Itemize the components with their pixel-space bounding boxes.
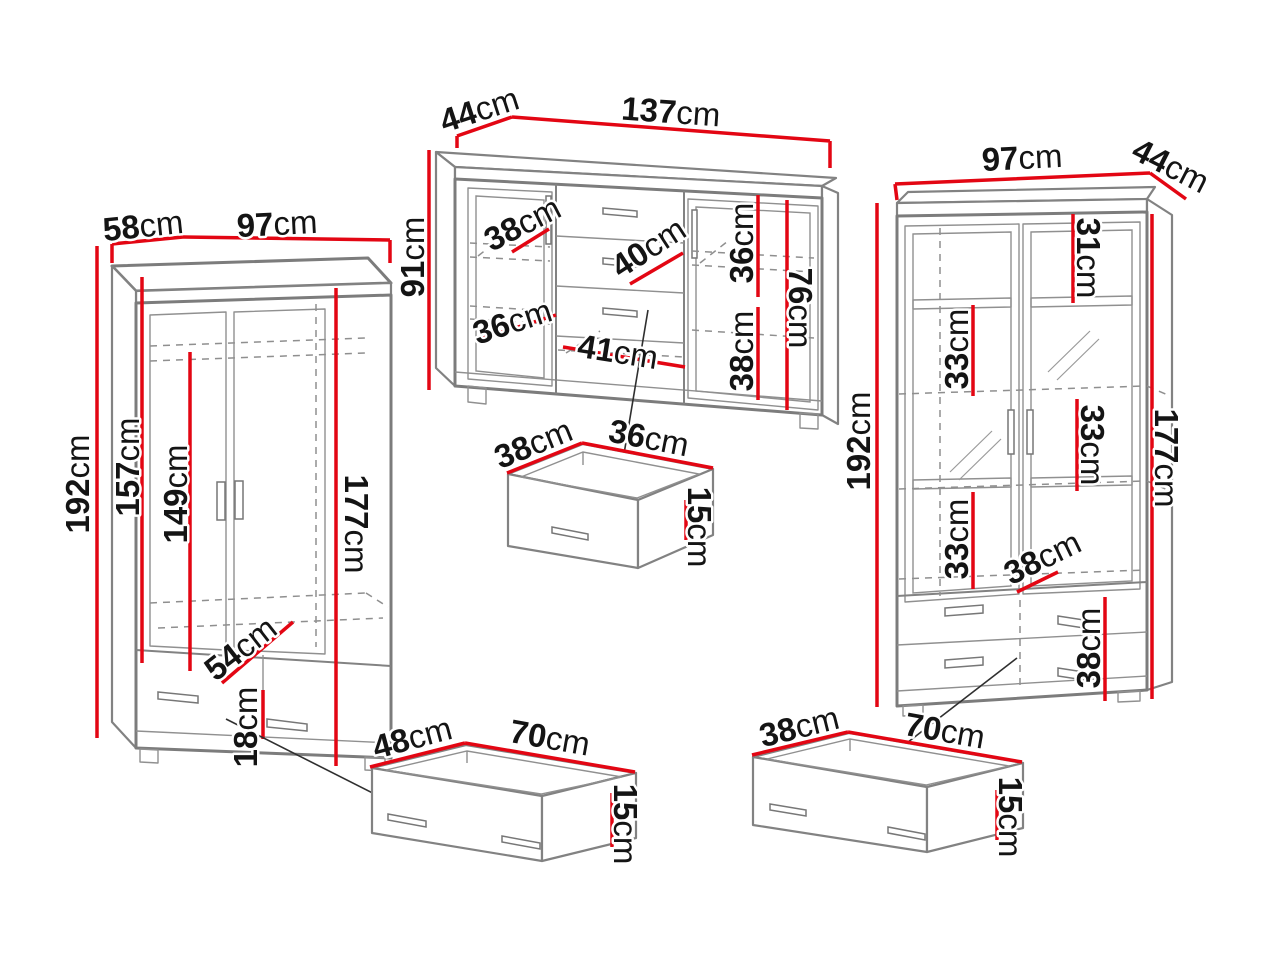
cabinet-middle-shelf-label: 33cm — [1075, 405, 1112, 486]
cabinet-left-door-handle — [1008, 410, 1014, 454]
cabinet-upper-shelf-label: 33cm — [938, 309, 975, 390]
display-cabinet-drawing: 97cm 44cm 192cm 31cm 33cm 33cm 33cm 38cm… — [820, 130, 1215, 810]
sideboard-height-label: 91cm — [394, 217, 431, 298]
underbed-drawer-structure — [372, 745, 636, 861]
wardrobe-left-door-handle — [217, 482, 225, 520]
cabinet-drawer-section-label: 38cm — [1070, 608, 1107, 689]
sideboard-right-upper-label: 36cm — [723, 203, 760, 284]
wardrobe-interior-right-label: 177cm — [339, 474, 376, 573]
wardrobe-foot-left — [140, 749, 158, 763]
small-drawer-height-label: 15cm — [682, 487, 719, 568]
cabinet-width-label: 97cm — [981, 136, 1064, 177]
wardrobe-depth-label: 58cm — [101, 202, 185, 247]
sideboard-right-lower-label: 38cm — [723, 311, 760, 392]
cabinet-right-door-handle — [1027, 410, 1033, 454]
display-cabinet-structure — [897, 187, 1172, 716]
furniture-dimensions-diagram: 58cm 97cm 192cm 157cm 149cm 177cm 54cm 1… — [0, 0, 1282, 961]
wardrobe-right-door-handle — [235, 481, 243, 519]
cabinet-interior-height-label: 177cm — [1149, 408, 1186, 507]
underbed-drawer-height-label: 15cm — [608, 784, 645, 865]
wide-drawer-height-label: 15cm — [993, 777, 1030, 858]
diagram-canvas: 58cm 97cm 192cm 157cm 149cm 177cm 54cm 1… — [0, 0, 1282, 961]
cabinet-top-section-label: 31cm — [1071, 218, 1108, 299]
small-drawer-drawing: 38cm 36cm 15cm — [489, 411, 719, 568]
cabinet-height-label: 192cm — [840, 391, 877, 490]
wide-drawer-structure — [753, 733, 1023, 852]
wide-drawer-drawing: 38cm 70cm 15cm — [752, 698, 1030, 857]
sideboard-right-face — [822, 186, 838, 424]
sideboard-width-label: 137cm — [620, 89, 721, 133]
wardrobe-height-label: 192cm — [59, 434, 96, 533]
wardrobe-drawer-height-label: 18cm — [227, 687, 264, 768]
wardrobe-interior-center-label: 149cm — [157, 444, 194, 543]
sideboard-structure — [436, 152, 838, 429]
cabinet-lower-shelf-label: 33cm — [938, 499, 975, 580]
sideboard-left-face — [436, 152, 455, 386]
underbed-drawer-drawing: 48cm 70cm 15cm — [368, 709, 644, 865]
wardrobe-width-label: 97cm — [236, 202, 319, 243]
sideboard-interior-height-label: 76cm — [783, 268, 820, 349]
wardrobe-interior-left-label: 157cm — [109, 417, 146, 516]
